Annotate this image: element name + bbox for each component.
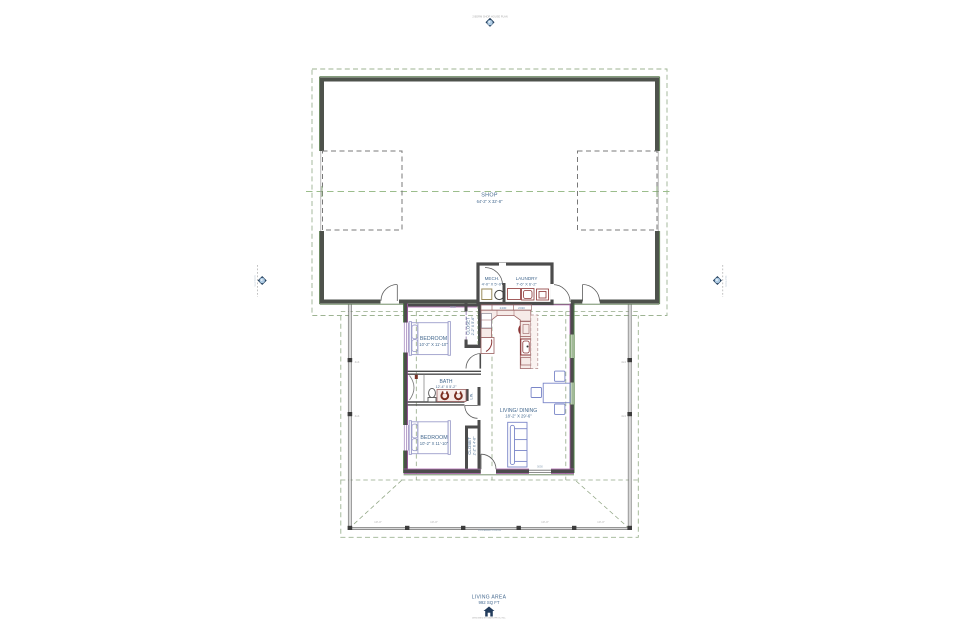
- svg-text:10'-0": 10'-0": [541, 520, 549, 524]
- svg-text:10'-0": 10'-0": [597, 520, 605, 524]
- svg-text:2'-2" X 5'-6": 2'-2" X 5'-6": [471, 316, 475, 335]
- svg-text:LAUNDRY: LAUNDRY: [516, 276, 538, 281]
- svg-text:4'-0" X 5'-0": 4'-0" X 5'-0": [482, 282, 503, 287]
- svg-text:7'-6" X 6'-2": 7'-6" X 6'-2": [516, 282, 537, 287]
- svg-text:CLOSET: CLOSET: [466, 317, 471, 335]
- svg-text:2'-2" X 4'-6": 2'-2" X 4'-6": [473, 436, 477, 455]
- svg-text:4x4: 4x4: [621, 414, 626, 418]
- svg-text:4x4: 4x4: [355, 360, 360, 364]
- svg-text:10'-0": 10'-0": [430, 520, 438, 524]
- svg-text:992 SQ FT: 992 SQ FT: [478, 600, 499, 605]
- svg-text:2 BDRM SHOP HOUSE PLAN: 2 BDRM SHOP HOUSE PLAN: [472, 14, 507, 18]
- svg-text:4x4: 4x4: [355, 414, 360, 418]
- svg-text:MECH.: MECH.: [485, 276, 500, 281]
- svg-text:5050: 5050: [537, 465, 543, 469]
- svg-text:LIN.: LIN.: [470, 393, 474, 400]
- svg-text:DESIGNED BY BARN PROS, INC.: DESIGNED BY BARN PROS, INC.: [472, 617, 506, 620]
- svg-text:2430: 2430: [518, 306, 525, 310]
- svg-text:SHOP: SHOP: [481, 193, 498, 199]
- svg-text:12'-4" X 5'-2": 12'-4" X 5'-2": [436, 385, 457, 389]
- svg-text:2430: 2430: [500, 306, 507, 310]
- svg-text:SECTION: SECTION: [254, 275, 257, 286]
- svg-text:COVERED PORCH: COVERED PORCH: [478, 528, 501, 532]
- svg-text:3050: 3050: [450, 305, 456, 309]
- svg-text:10'-2" X 11'-10": 10'-2" X 11'-10": [420, 441, 449, 446]
- svg-text:10'-0": 10'-0": [374, 520, 382, 524]
- svg-text:4x4: 4x4: [621, 360, 626, 364]
- svg-text:SECTION: SECTION: [724, 275, 727, 286]
- svg-text:CLOSET: CLOSET: [467, 437, 472, 455]
- svg-text:10'-2" X 11'-10": 10'-2" X 11'-10": [419, 342, 448, 347]
- svg-text:18'-2" X 29'-6": 18'-2" X 29'-6": [505, 414, 532, 419]
- svg-text:64'-2" X 32'-8": 64'-2" X 32'-8": [477, 199, 503, 204]
